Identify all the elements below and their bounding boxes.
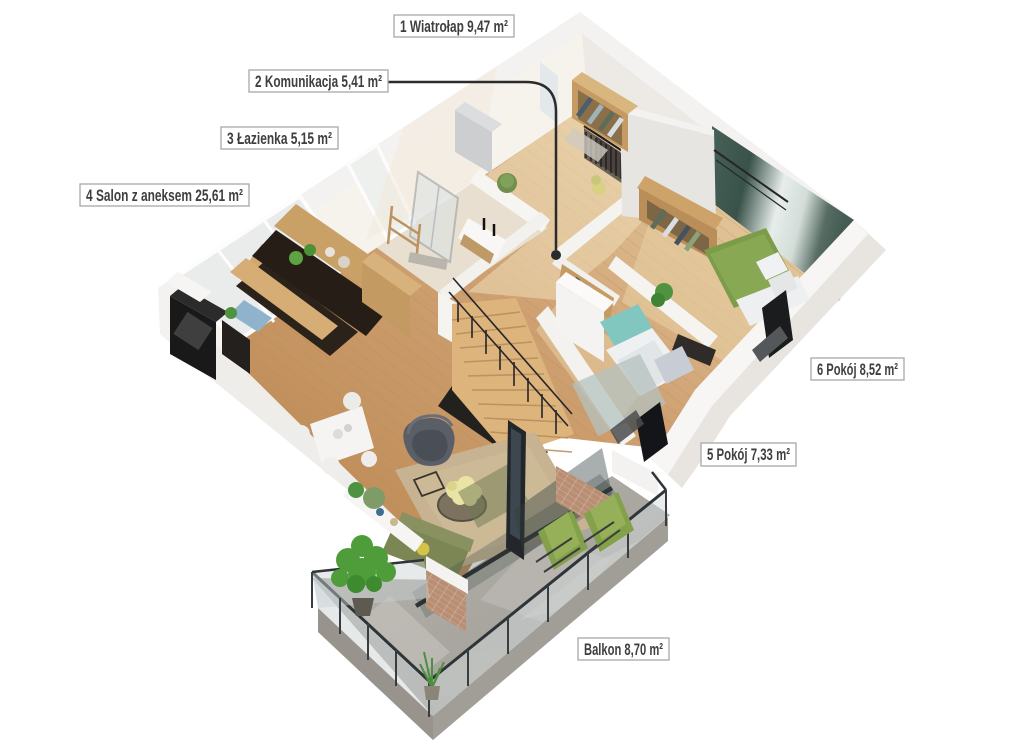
svg-text:5 Pokój 7,33 m²: 5 Pokój 7,33 m² [707, 445, 790, 464]
svg-text:Balkon 8,70 m²: Balkon 8,70 m² [584, 640, 663, 659]
svg-text:2 Komunikacja 5,41 m²: 2 Komunikacja 5,41 m² [255, 72, 382, 91]
svg-text:4 Salon z aneksem 25,61 m²: 4 Salon z aneksem 25,61 m² [86, 186, 243, 205]
svg-text:1 Wiatrołap 9,47 m²: 1 Wiatrołap 9,47 m² [400, 17, 508, 36]
svg-text:6 Pokój 8,52 m²: 6 Pokój 8,52 m² [817, 360, 898, 379]
svg-text:3 Łazienka 5,15 m²: 3 Łazienka 5,15 m² [227, 129, 332, 148]
